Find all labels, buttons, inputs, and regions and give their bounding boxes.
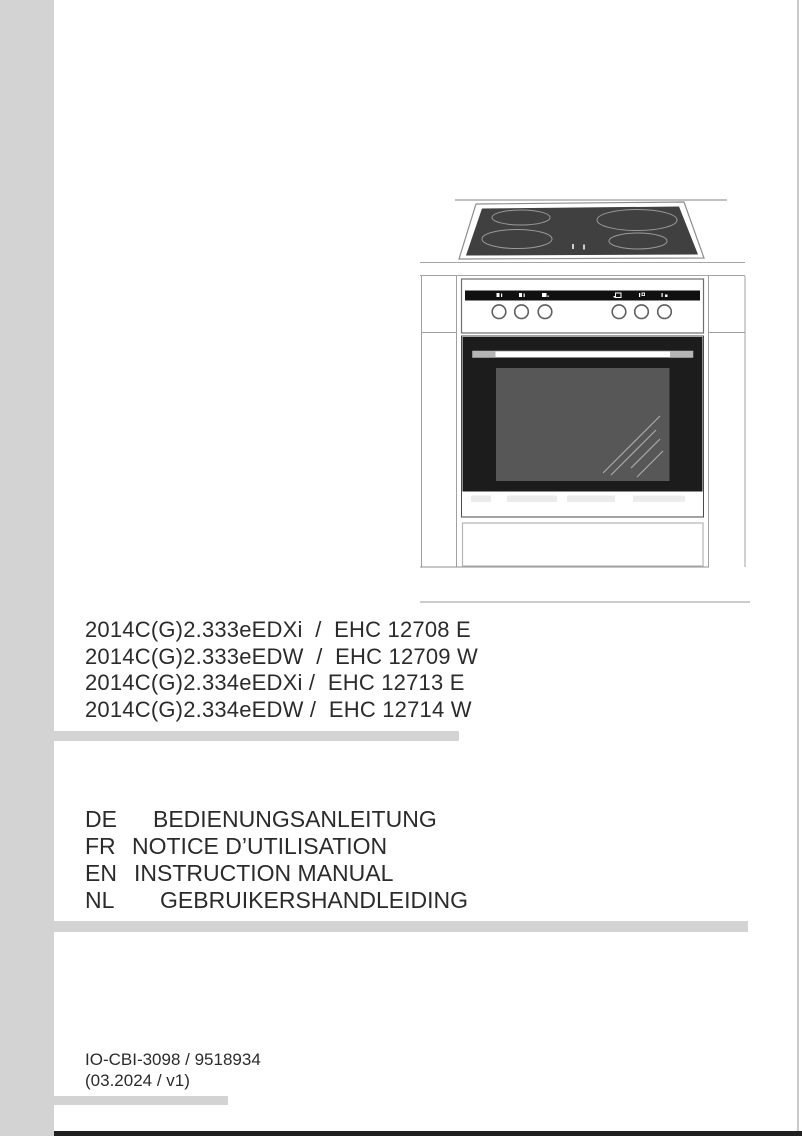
plinth-drawer (463, 523, 704, 566)
hob-knob-3 (538, 305, 552, 319)
ceramic-hob (459, 202, 704, 259)
residual-heat-mark-1 (572, 244, 574, 249)
language-title: GEBRUIKERSHANDLEIDING (160, 887, 468, 914)
language-title: NOTICE D’UTILISATION (132, 833, 387, 860)
door-handle-cap-right (670, 351, 693, 358)
language-code: EN (85, 860, 123, 887)
oven-timer-knob (658, 305, 672, 319)
model-line: 2014C(G)2.334eEDXi / EHC 12713 E (85, 670, 478, 697)
model-number-list: 2014C(G)2.333eEDXi / EHC 12708 E 2014C(G… (85, 617, 478, 723)
model-line: 2014C(G)2.333eEDW / EHC 12709 W (85, 644, 478, 671)
language-list: DE BEDIENUNGSANLEITUNG FR NOTICE D’UTILI… (85, 806, 468, 914)
oven-function-knob (612, 305, 626, 319)
hob-knob-1 (492, 305, 506, 319)
oven-thermostat-knob (635, 305, 649, 319)
door-window (496, 368, 670, 481)
divider-bar-languages (54, 921, 748, 932)
left-margin-rail (0, 0, 54, 1136)
divider-bar-docid (54, 1096, 228, 1105)
hob-zone-icon-2 (519, 293, 525, 297)
language-row-de: DE BEDIENUNGSANLEITUNG (85, 806, 468, 833)
hob-knob-2 (515, 305, 529, 319)
door-handle (473, 351, 694, 358)
language-row-en: EN INSTRUCTION MANUAL (85, 860, 468, 887)
control-panel-strip (465, 291, 700, 301)
hob-zone-icon-1 (497, 293, 503, 297)
document-id-block: IO-CBI-3098 / 9518934 (03.2024 / v1) (85, 1050, 261, 1091)
model-line: 2014C(G)2.334eEDW / EHC 12714 W (85, 697, 478, 724)
residual-heat-mark-2 (583, 245, 585, 250)
door-handle-cap-left (473, 351, 496, 358)
language-title: INSTRUCTION MANUAL (134, 860, 393, 887)
right-cabinet (709, 276, 746, 567)
language-row-fr: FR NOTICE D’UTILISATION (85, 833, 468, 860)
language-row-nl: NL GEBRUIKERSHANDLEIDING (85, 887, 468, 914)
document-version: (03.2024 / v1) (85, 1071, 261, 1092)
document-number: IO-CBI-3098 / 9518934 (85, 1050, 261, 1071)
cooker-illustration (415, 190, 760, 610)
model-line: 2014C(G)2.333eEDXi / EHC 12708 E (85, 617, 478, 644)
oven-front (462, 336, 704, 517)
right-edge-line (797, 0, 799, 1131)
language-title: BEDIENUNGSANLEITUNG (153, 806, 437, 833)
language-code: FR (85, 833, 123, 860)
control-panel (462, 279, 704, 333)
left-cabinet (422, 276, 457, 567)
divider-bar-models (54, 731, 459, 741)
manual-cover-page: { "models": [ "2014C(G)2.333eEDXi / EHC … (0, 0, 802, 1136)
language-code: DE (85, 806, 123, 833)
language-code: NL (85, 887, 123, 914)
footer-bar (54, 1131, 802, 1136)
